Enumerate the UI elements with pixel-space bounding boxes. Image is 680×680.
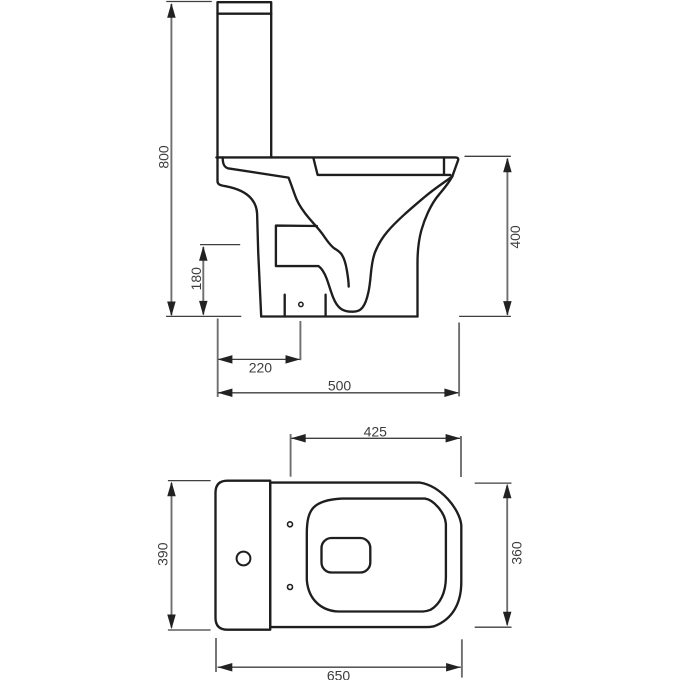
svg-text:500: 500 xyxy=(328,377,352,393)
svg-text:360: 360 xyxy=(508,541,524,565)
svg-text:400: 400 xyxy=(507,225,523,249)
svg-text:800: 800 xyxy=(155,145,171,169)
svg-text:650: 650 xyxy=(327,668,351,680)
svg-text:180: 180 xyxy=(188,267,204,291)
svg-text:390: 390 xyxy=(154,542,170,566)
svg-text:425: 425 xyxy=(364,423,388,439)
svg-text:220: 220 xyxy=(249,359,273,375)
